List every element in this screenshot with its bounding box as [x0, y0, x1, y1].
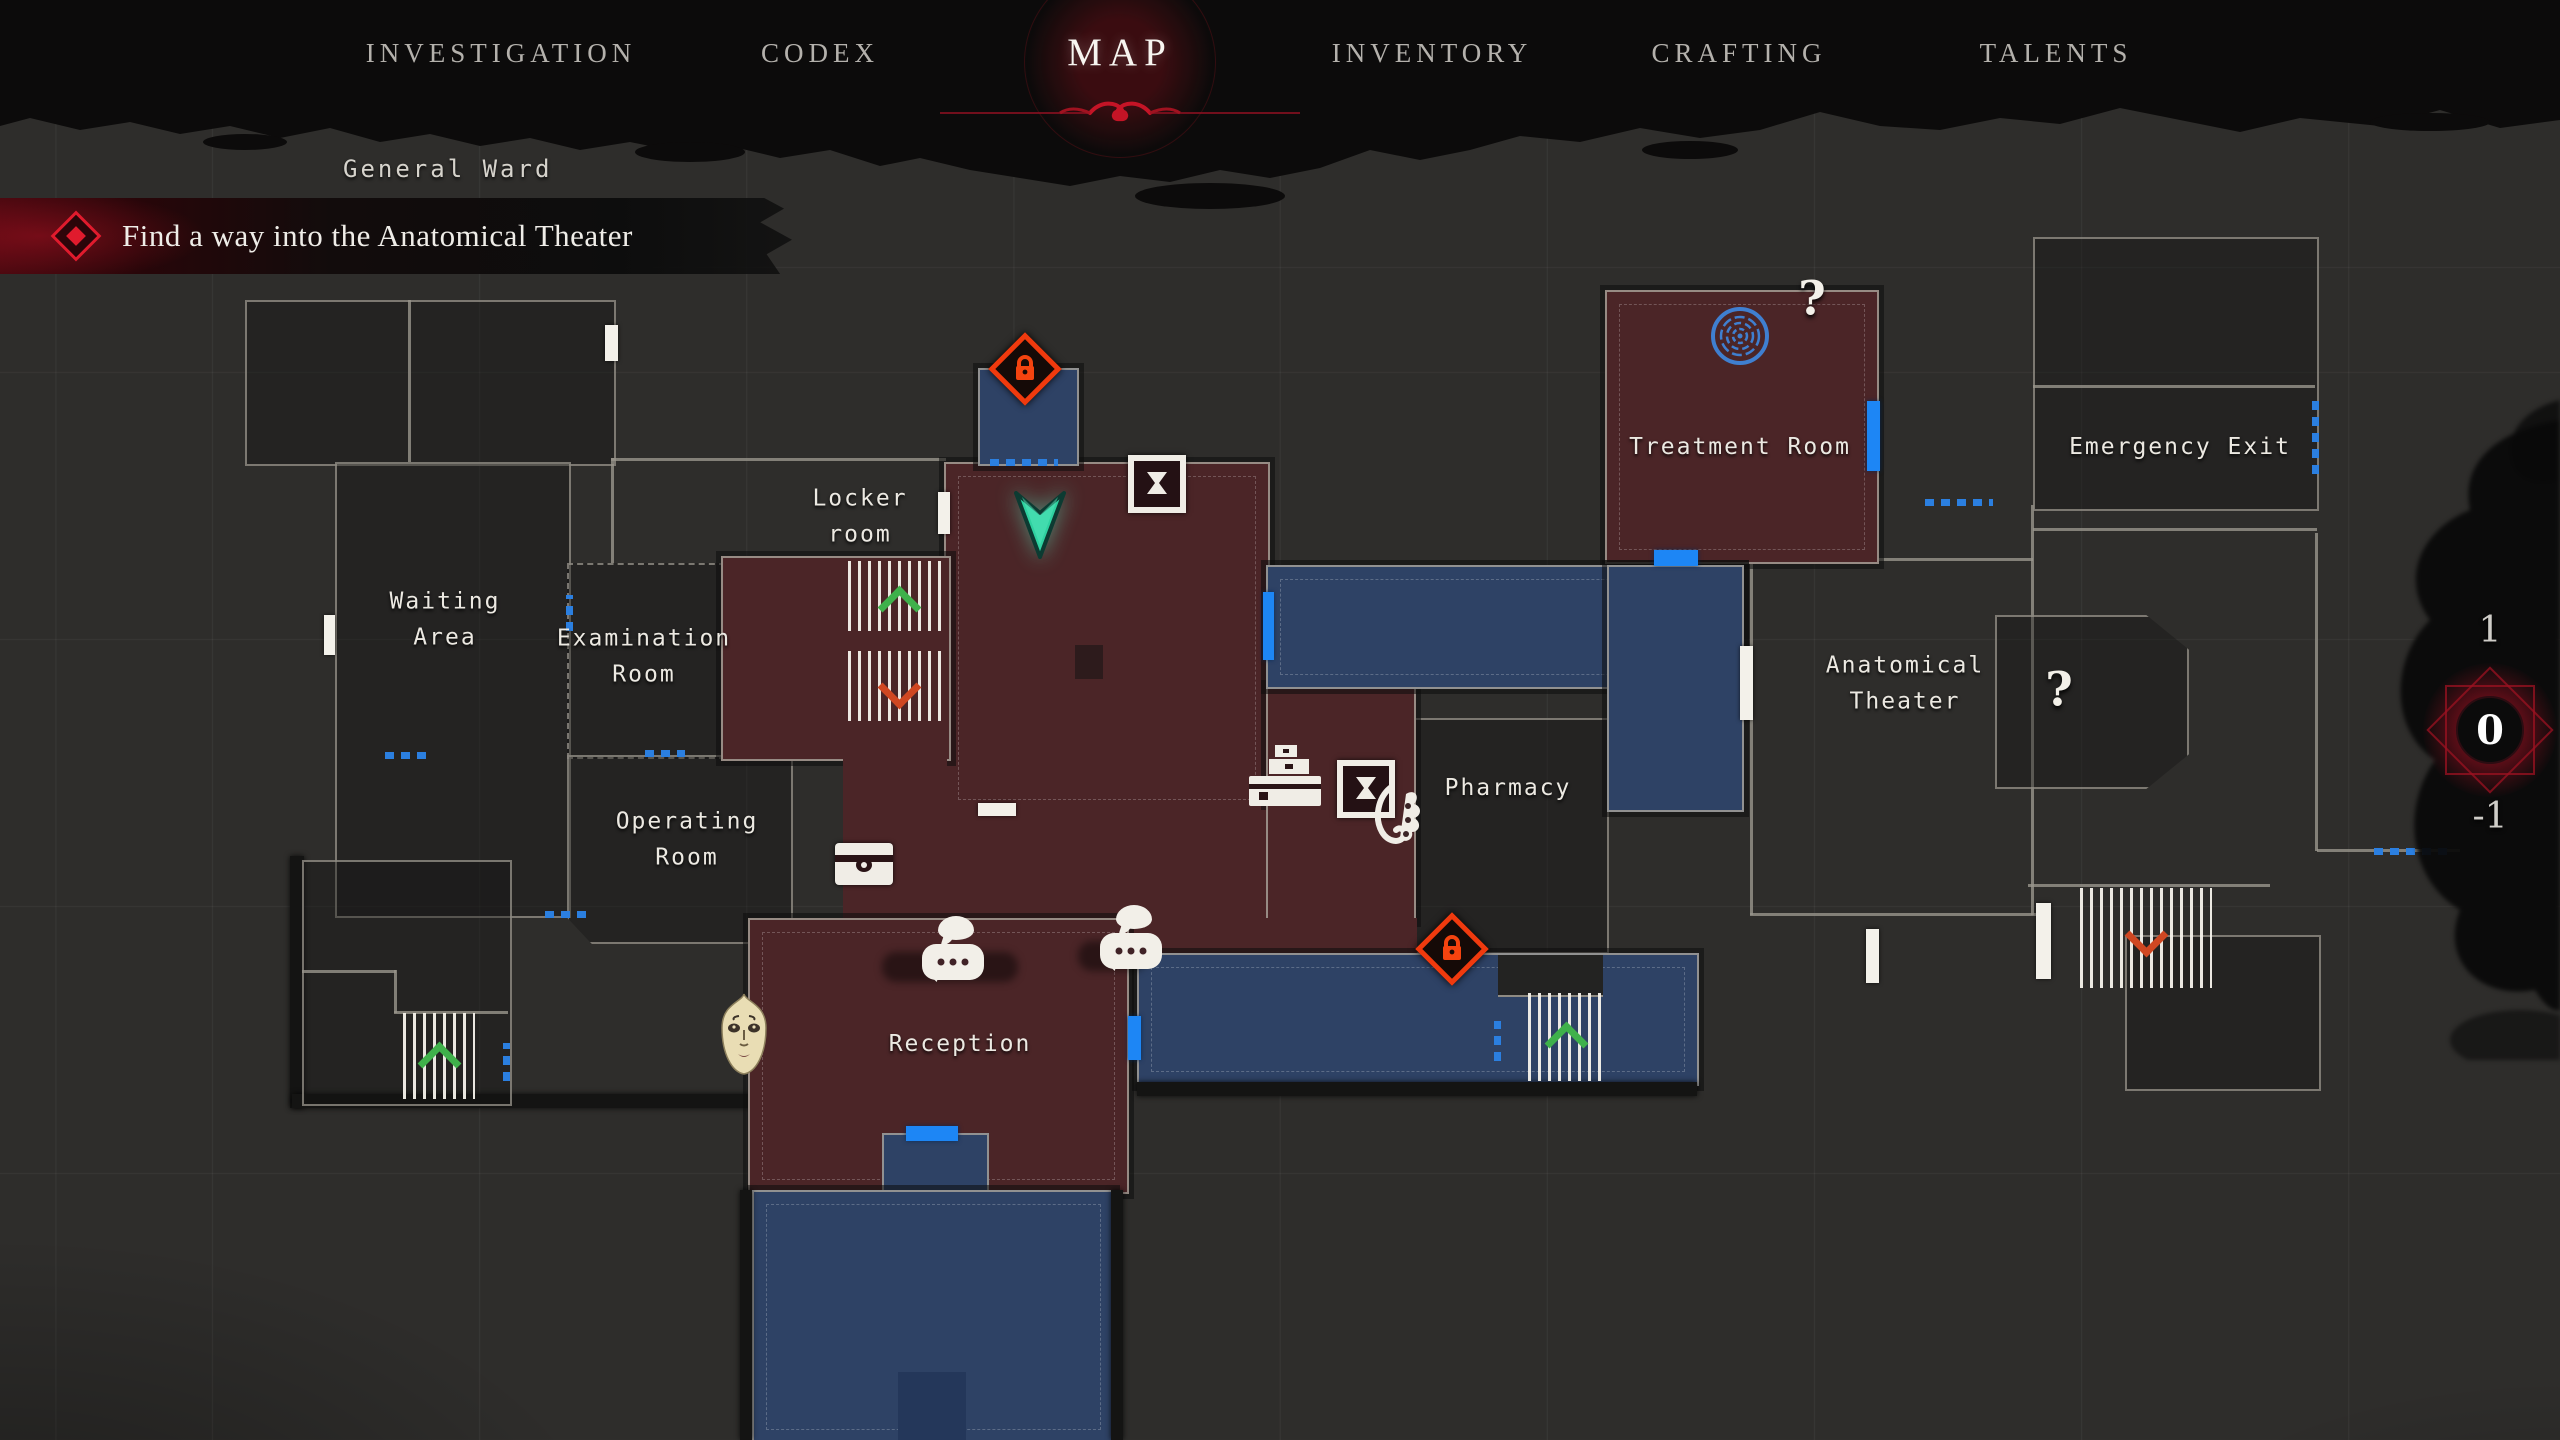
- room-label-treatment: Treatment Room: [1629, 430, 1851, 466]
- floor-below-button[interactable]: -1: [2472, 796, 2507, 837]
- room-emergency-exit: [2033, 237, 2319, 511]
- question-mark-icon: ?: [2045, 663, 2073, 718]
- lock-diamond-icon: [992, 336, 1058, 402]
- passage-dashed: [385, 752, 427, 759]
- question-mark-icon: ?: [1798, 272, 1826, 327]
- outer-wall: [740, 1190, 752, 1440]
- door: [324, 615, 335, 655]
- conversation-icon: [904, 916, 996, 1000]
- door: [938, 492, 950, 534]
- door: [1866, 929, 1879, 983]
- elevator-shaft: [1075, 645, 1103, 679]
- passage-dashed: [2374, 848, 2450, 855]
- wall: [2028, 884, 2270, 887]
- corridor-blue-right: [1607, 565, 1744, 812]
- map-screen: ? ? Waiting Area Examination Room Operat…: [0, 0, 2560, 1440]
- room-octagon: [1995, 615, 2189, 789]
- conversation-icon: [1082, 905, 1174, 989]
- map-tab-flourish: [940, 97, 1300, 131]
- passage-dashed: [990, 459, 1058, 466]
- wall: [302, 970, 396, 973]
- passage-dashed: [2312, 400, 2319, 474]
- tab-inventory[interactable]: INVENTORY: [1332, 38, 1533, 69]
- passage-dashed: [503, 1043, 510, 1081]
- passage-dashed: [645, 750, 685, 757]
- room-label-locker: Locker room: [800, 481, 920, 552]
- door: [1740, 646, 1753, 720]
- objective-diamond-icon: [58, 218, 94, 254]
- tab-investigation[interactable]: INVESTIGATION: [366, 38, 636, 69]
- floor-current-button[interactable]: 0: [2435, 675, 2545, 785]
- floor-current-label: 0: [2456, 696, 2524, 764]
- room-label-pharmacy: Pharmacy: [1445, 771, 1572, 807]
- door-highlighted: [1263, 592, 1274, 660]
- stair-notch: [1498, 955, 1603, 997]
- lock-icon: [1437, 934, 1467, 964]
- wall: [408, 300, 411, 462]
- door-highlighted: [1654, 550, 1698, 566]
- room-label-examination: Examination Room: [534, 621, 754, 692]
- room-red-arm: [843, 757, 947, 918]
- hook-item-icon: [1370, 784, 1426, 860]
- tab-codex[interactable]: CODEX: [761, 38, 879, 69]
- save-point-icon: [1128, 455, 1186, 513]
- tab-talents[interactable]: TALENTS: [1980, 38, 2133, 69]
- spiral-poi-icon: [1709, 305, 1771, 371]
- wall: [1750, 560, 1753, 915]
- storage-chest-icon: [835, 843, 893, 885]
- room-red-upper-reception: [947, 810, 1266, 918]
- wall: [1750, 913, 2050, 916]
- passage-dashed: [545, 911, 591, 918]
- door: [2036, 903, 2051, 979]
- room-label-waiting-area: Waiting Area: [365, 584, 525, 655]
- room-label-operating: Operating Room: [597, 804, 777, 875]
- blue-bottom-inner: [898, 1372, 966, 1440]
- door-highlighted: [906, 1126, 958, 1141]
- room-label-emergency-exit: Emergency Exit: [2069, 430, 2291, 466]
- door: [978, 803, 1016, 816]
- door: [605, 325, 618, 361]
- wall: [2315, 533, 2318, 851]
- lock-diamond-icon: [1419, 916, 1485, 982]
- objective-banner: Find a way into the Anatomical Theater: [0, 198, 792, 274]
- workbench-icon: [1249, 745, 1321, 807]
- outer-wall: [1111, 1190, 1123, 1440]
- room-blue-connector: [882, 1133, 989, 1197]
- tab-map[interactable]: MAP: [1067, 30, 1173, 75]
- passage-dashed: [1925, 499, 1993, 506]
- passage-dashed: [1494, 1021, 1501, 1061]
- room-top-left: [245, 300, 616, 466]
- wall: [1877, 558, 2033, 561]
- room-label-anatomical-theater: Anatomical Theater: [1795, 648, 2015, 719]
- wall: [611, 458, 614, 563]
- area-label: General Ward: [343, 155, 552, 183]
- tab-crafting[interactable]: CRAFTING: [1651, 38, 1826, 69]
- objective-text: Find a way into the Anatomical Theater: [122, 218, 633, 254]
- room-player-red: [944, 462, 1270, 814]
- wall: [611, 458, 946, 461]
- lock-icon: [1010, 354, 1040, 384]
- wall: [2033, 385, 2315, 388]
- player-arrow-icon: [1008, 485, 1072, 569]
- floor-above-button[interactable]: 1: [2479, 610, 2502, 651]
- corridor-blue-east: [1137, 953, 1699, 1086]
- wall: [394, 970, 397, 1013]
- door-highlighted: [1128, 1016, 1141, 1060]
- wall: [2033, 528, 2317, 531]
- npc-face-icon: [716, 992, 772, 1080]
- room-label-reception: Reception: [889, 1027, 1032, 1063]
- door-highlighted: [1867, 401, 1880, 471]
- outer-wall: [1137, 1082, 1697, 1096]
